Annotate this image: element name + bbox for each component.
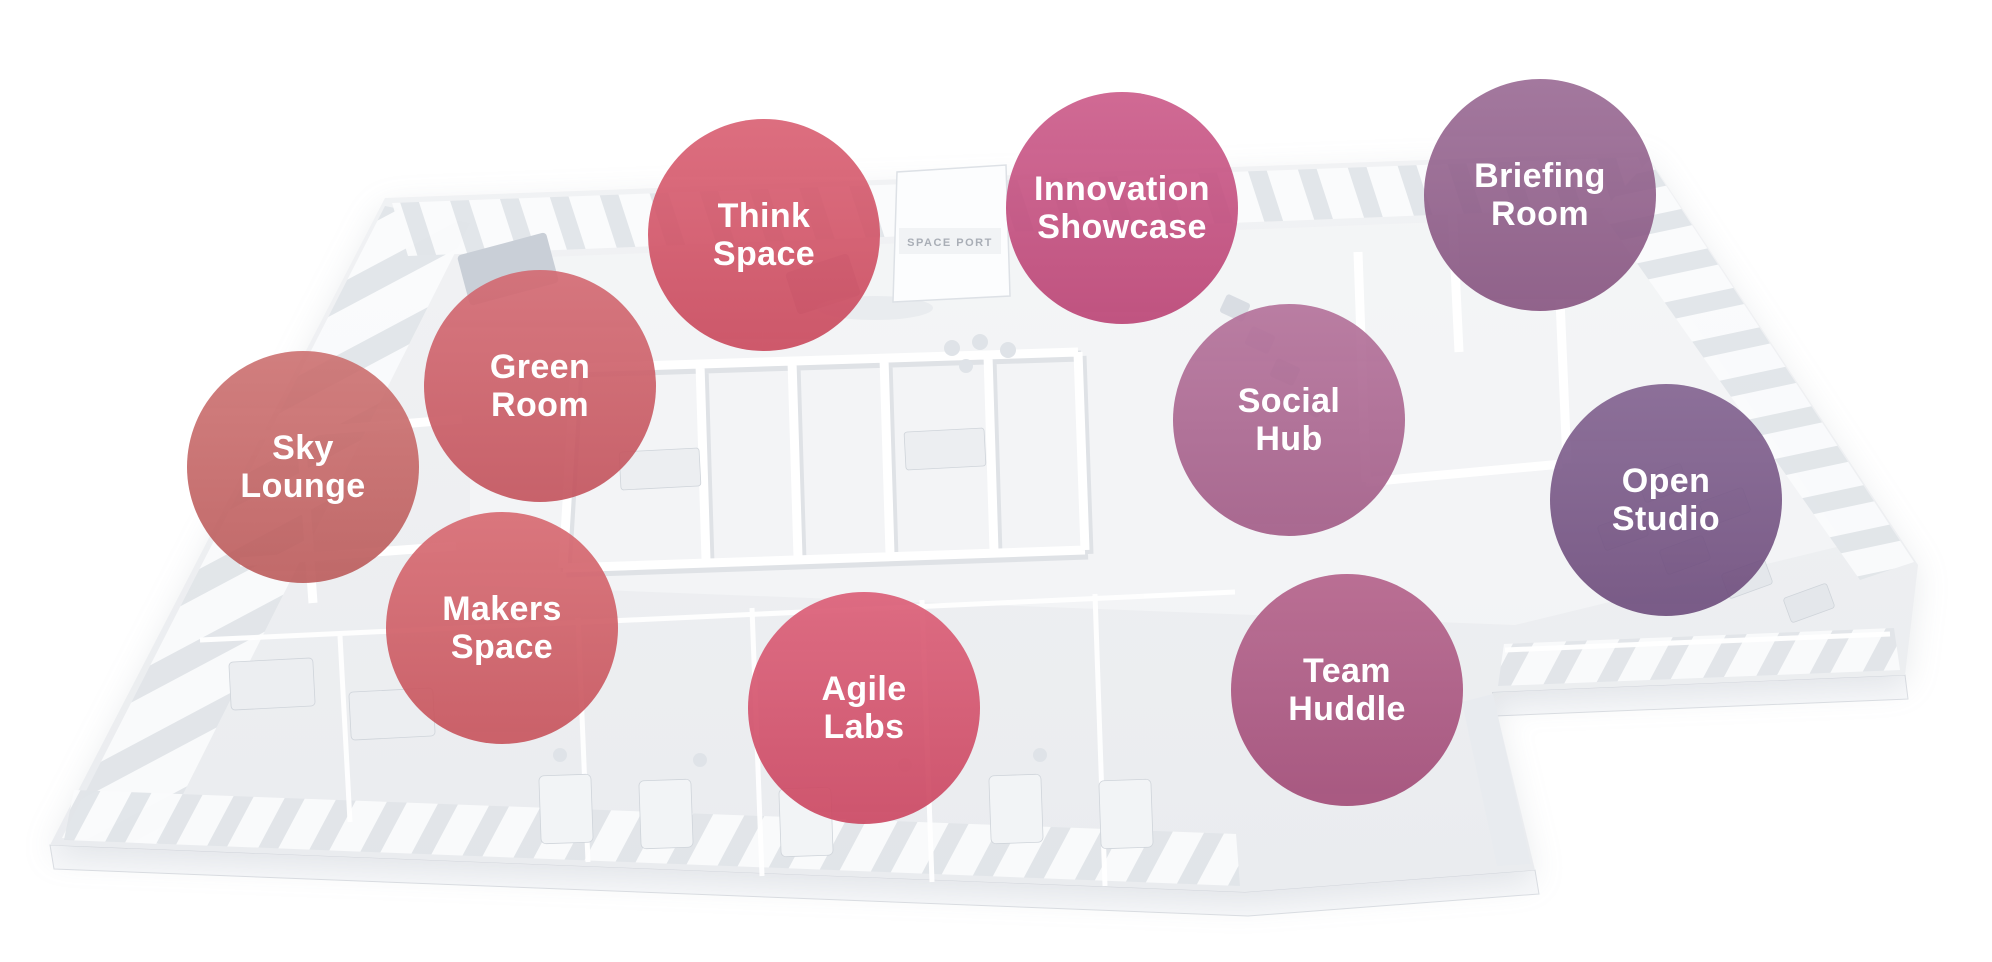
zone-label-line: Space — [713, 235, 815, 273]
zone-label-line: Innovation — [1034, 170, 1210, 208]
zone-label-line: Sky — [272, 429, 334, 467]
zone-label-line: Lounge — [240, 467, 365, 505]
zone-label-line: Think — [718, 197, 811, 235]
zone-label-line: Social — [1238, 382, 1341, 420]
zone-innovation-showcase[interactable]: Innovation Showcase — [1006, 92, 1238, 324]
zone-label-line: Labs — [824, 708, 905, 746]
booth-sign-text: SPACE PORT — [907, 237, 993, 249]
zone-green-room[interactable]: Green Room — [424, 270, 656, 502]
zone-label-line: Makers — [442, 590, 562, 628]
zone-label-line: Room — [491, 386, 589, 424]
zone-label-line: Studio — [1612, 500, 1720, 538]
zone-label-line: Room — [1491, 195, 1589, 233]
zone-label-line: Space — [451, 628, 553, 666]
zone-briefing-room[interactable]: Briefing Room — [1424, 79, 1656, 311]
zone-label-line: Showcase — [1037, 208, 1207, 246]
zone-social-hub[interactable]: Social Hub — [1173, 304, 1405, 536]
zone-label-line: Huddle — [1288, 690, 1406, 728]
zone-think-space[interactable]: Think Space — [648, 119, 880, 351]
zone-label-line: Team — [1303, 652, 1391, 690]
zone-label-line: Open — [1622, 462, 1711, 500]
zone-sky-lounge[interactable]: Sky Lounge — [187, 351, 419, 583]
zone-makers-space[interactable]: Makers Space — [386, 512, 618, 744]
zone-open-studio[interactable]: Open Studio — [1550, 384, 1782, 616]
zone-label-line: Agile — [821, 670, 906, 708]
zone-agile-labs[interactable]: Agile Labs — [748, 592, 980, 824]
zone-label-line: Hub — [1255, 420, 1322, 458]
zone-label-line: Briefing — [1474, 157, 1606, 195]
floorplan-canvas: SPACE PORT Sky Lounge Green Room Think S… — [0, 0, 1992, 962]
zone-label-line: Green — [490, 348, 590, 386]
zone-team-huddle[interactable]: Team Huddle — [1231, 574, 1463, 806]
